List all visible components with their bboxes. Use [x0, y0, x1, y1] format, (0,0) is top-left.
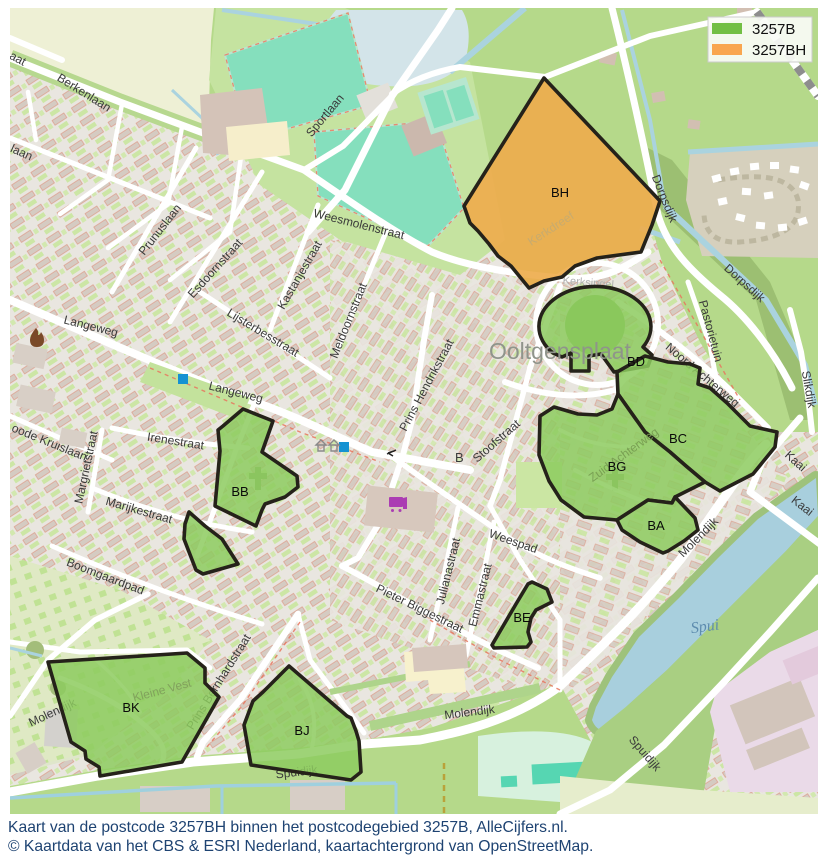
svg-text:BD: BD: [627, 354, 645, 369]
svg-text:3257BH: 3257BH: [752, 42, 806, 59]
svg-text:BA: BA: [647, 518, 665, 533]
svg-text:BE: BE: [513, 610, 531, 625]
svg-text:BB: BB: [231, 484, 248, 499]
svg-text:BJ: BJ: [294, 723, 309, 738]
svg-text:BK: BK: [122, 700, 140, 715]
svg-text:Ooltgensplaat: Ooltgensplaat: [489, 338, 632, 364]
svg-text:BG: BG: [608, 459, 627, 474]
svg-text:BH: BH: [551, 185, 569, 200]
svg-text:B: B: [455, 450, 464, 465]
svg-text:3257B: 3257B: [752, 21, 795, 38]
svg-text:BC: BC: [669, 431, 687, 446]
